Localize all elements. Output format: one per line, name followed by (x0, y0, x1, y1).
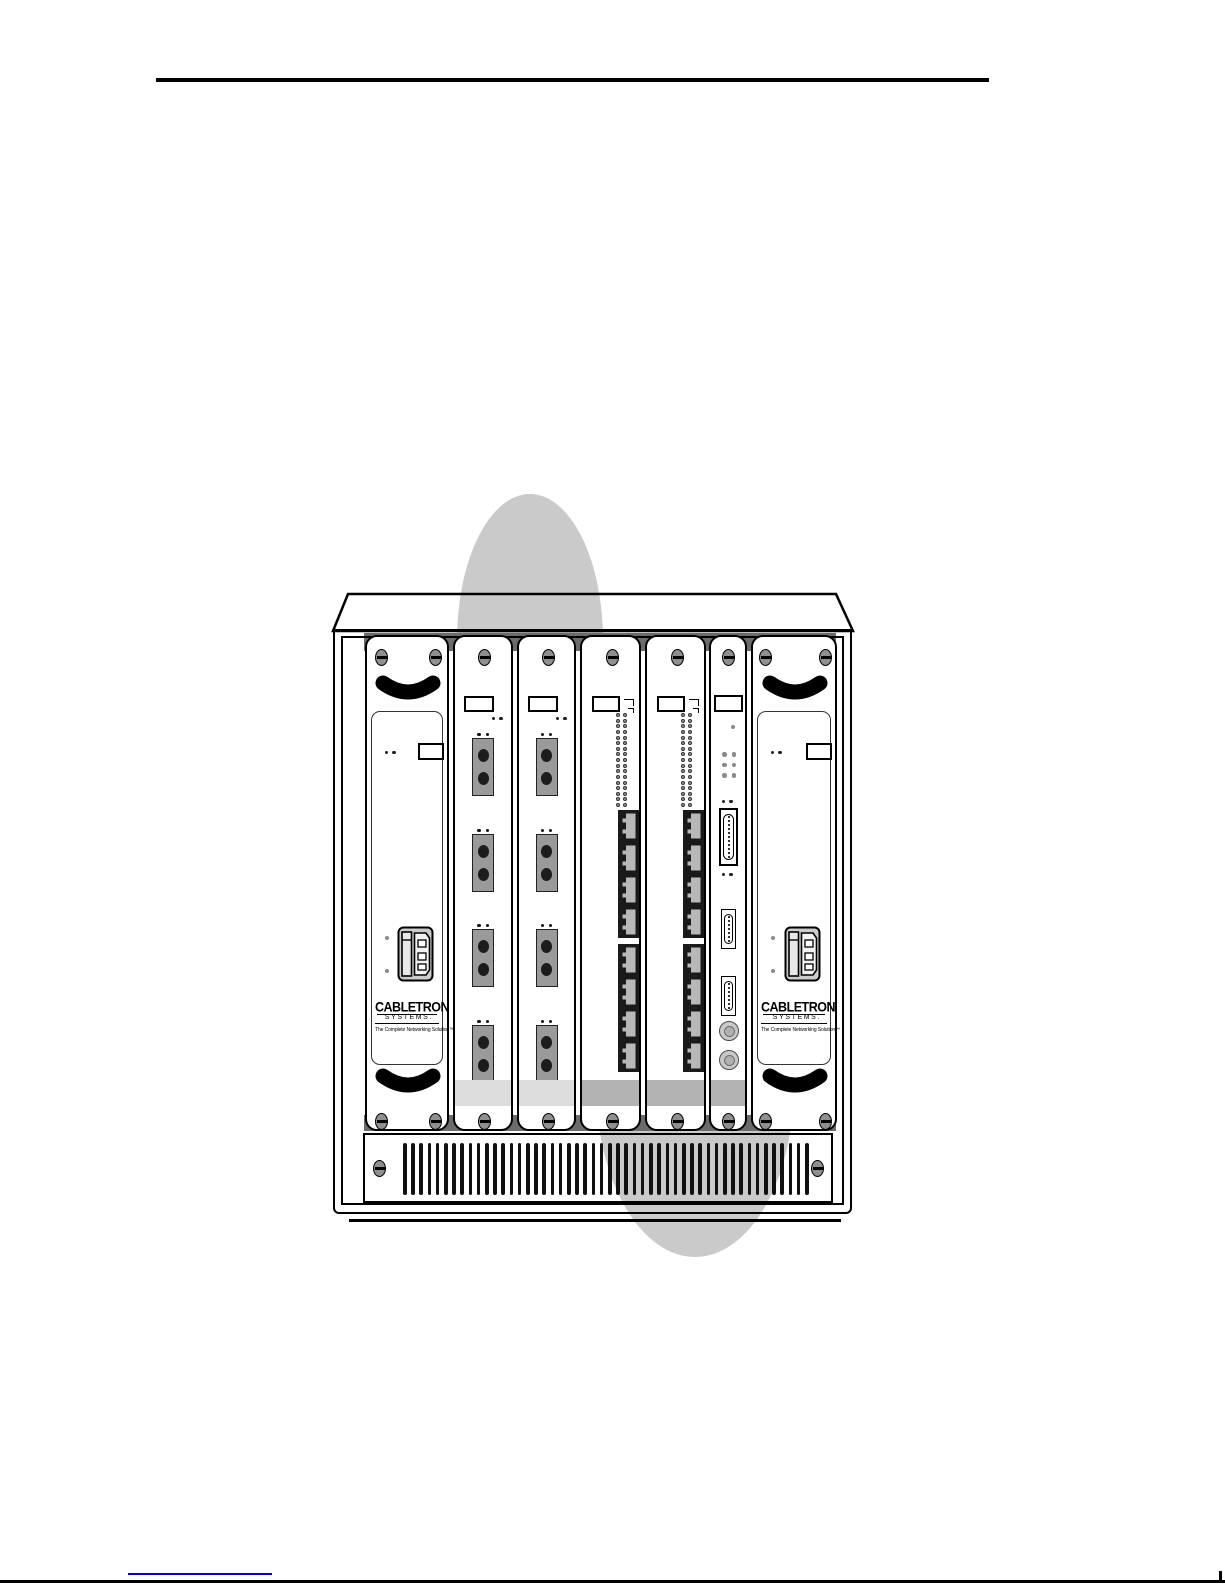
fiber-ferrule (541, 1036, 552, 1049)
round-connector (719, 1050, 739, 1070)
power-led (385, 969, 389, 973)
status-led-pair (556, 717, 567, 720)
led (549, 733, 552, 736)
cabletron-logo: CABLETRON SYSTEMS. The Complete Networki… (761, 1000, 827, 1033)
link-underline[interactable] (128, 1573, 272, 1575)
status-led-pair (722, 800, 733, 803)
vent-slot (633, 1143, 637, 1195)
led (681, 752, 685, 756)
chassis-base-line (349, 1219, 841, 1222)
led (681, 730, 685, 734)
led-row (615, 741, 628, 745)
led (688, 797, 692, 801)
led (688, 769, 692, 773)
fiber-led-pair (541, 733, 553, 736)
vent-slot (707, 1143, 711, 1195)
led (681, 758, 685, 762)
led-row (680, 724, 693, 728)
fiber-port (536, 1025, 558, 1083)
rj45-jack (618, 1008, 639, 1040)
vent-slot (510, 1143, 514, 1195)
led (688, 786, 692, 790)
led (477, 733, 480, 736)
vent-slot (428, 1143, 432, 1195)
ac-power-inlet (397, 926, 434, 982)
label-plate (592, 696, 620, 712)
led (623, 741, 627, 745)
led-row (615, 719, 628, 723)
logo-tagline: The Complete Networking Solution™ (761, 1027, 827, 1033)
led (541, 1020, 544, 1023)
led (477, 1020, 480, 1023)
led (681, 781, 685, 785)
label-plate (714, 695, 743, 712)
psu-faceplate-panel: CABLETRON SYSTEMS. The Complete Networki… (757, 711, 831, 1065)
led (681, 724, 685, 728)
handle-icon (374, 674, 442, 710)
led-row (680, 736, 693, 740)
status-led-pair (385, 751, 396, 754)
vent-slot (600, 1143, 604, 1195)
led (688, 752, 692, 756)
screw (819, 649, 832, 666)
led (616, 719, 620, 723)
rj45-jack (683, 1008, 704, 1040)
vent-slot (764, 1143, 768, 1195)
led (623, 786, 627, 790)
fiber-ferrule (478, 940, 489, 953)
vent-slot (469, 1143, 473, 1195)
label-plate (464, 696, 494, 712)
led-row (680, 730, 693, 734)
module-fiber-a (453, 635, 513, 1131)
led (486, 1020, 489, 1023)
rj45-jack-group (683, 810, 704, 938)
led (616, 730, 620, 734)
led (681, 792, 685, 796)
ejector-band (582, 1080, 639, 1106)
led (681, 764, 685, 768)
led (623, 764, 627, 768)
screw (759, 1113, 772, 1130)
rj45-jack (683, 842, 704, 874)
label-plate (418, 743, 444, 760)
led (549, 829, 552, 832)
rj45-jack-group (618, 810, 639, 938)
led (681, 719, 685, 723)
led (616, 803, 620, 807)
fiber-ferrule (478, 963, 489, 976)
vent-slot (674, 1143, 678, 1195)
fiber-port-unit (472, 733, 494, 796)
led-row (680, 764, 693, 768)
fiber-port-unit (536, 733, 558, 796)
rj45-jack (618, 976, 639, 1008)
vent-slot (436, 1143, 440, 1195)
screw (671, 1113, 684, 1130)
handle-icon (761, 1067, 829, 1103)
led-row (615, 781, 628, 785)
led-row (680, 741, 693, 745)
screw (373, 1160, 386, 1177)
led (623, 797, 627, 801)
fiber-ferrule (478, 845, 489, 858)
status-led-pair (722, 873, 733, 876)
module-power-supply-right: CABLETRON SYSTEMS. The Complete Networki… (751, 635, 837, 1131)
rj45-jack (618, 944, 639, 976)
led (616, 758, 620, 762)
module-tp-b (645, 635, 706, 1131)
led (541, 924, 544, 927)
label-bracket (689, 699, 699, 713)
chassis-top-face (330, 590, 856, 634)
ejector-band (455, 1080, 511, 1106)
fiber-ferrule (478, 1059, 489, 1072)
led (722, 752, 727, 757)
led-row (615, 775, 628, 779)
vent-slot (460, 1143, 464, 1195)
led (616, 775, 620, 779)
vent-slot (624, 1143, 628, 1195)
led-row (680, 781, 693, 785)
screw (478, 1113, 491, 1130)
vent-slot (518, 1143, 522, 1195)
fiber-port-unit (536, 829, 558, 892)
fiber-ferrule (541, 772, 552, 785)
fiber-ferrule (478, 868, 489, 881)
led (549, 1020, 552, 1023)
led (688, 764, 692, 768)
led (623, 747, 627, 751)
handle-icon (761, 674, 829, 710)
led (623, 775, 627, 779)
cabletron-logo: CABLETRON SYSTEMS. The Complete Networki… (375, 1000, 439, 1033)
led (681, 736, 685, 740)
led-row (615, 803, 628, 807)
led-row (680, 792, 693, 796)
fiber-led-pair (477, 733, 489, 736)
led (616, 752, 620, 756)
rj45-jack (683, 976, 704, 1008)
rj45-jack-group (618, 944, 639, 1072)
led (681, 803, 685, 807)
vent-slot (666, 1143, 670, 1195)
led (722, 773, 727, 778)
led (623, 719, 627, 723)
rj45-jack (618, 1040, 639, 1072)
led (623, 792, 627, 796)
led-row (615, 758, 628, 762)
led (616, 764, 620, 768)
fiber-port (472, 1025, 494, 1083)
screw (811, 1160, 824, 1177)
module-tp-a (580, 635, 641, 1131)
fiber-port-unit (472, 1020, 494, 1083)
led-row (680, 769, 693, 773)
vent-slot (559, 1143, 563, 1195)
vent-slot (649, 1143, 653, 1195)
port-led-strip (680, 713, 693, 807)
page-bottom-tick (1219, 1571, 1222, 1581)
screw (722, 649, 735, 666)
led (688, 775, 692, 779)
led-row (680, 719, 693, 723)
led (688, 724, 692, 728)
page-top-rule (156, 78, 989, 82)
led (616, 769, 620, 773)
logo-tagline: The Complete Networking Solution™ (375, 1027, 439, 1033)
led (616, 713, 620, 717)
led (688, 758, 692, 762)
ejector-band (647, 1080, 704, 1106)
led (623, 713, 627, 717)
vent-slot (444, 1143, 448, 1195)
vent-slot (789, 1143, 793, 1195)
fiber-ferrule (541, 940, 552, 953)
fiber-ferrule (541, 845, 552, 858)
vent-slot (715, 1143, 719, 1195)
fiber-led-pair (477, 924, 489, 927)
power-led (771, 936, 775, 940)
screw (375, 649, 388, 666)
screw (819, 1113, 832, 1130)
led-row (680, 797, 693, 801)
led-row (615, 713, 628, 717)
fiber-port-unit (536, 924, 558, 987)
led (623, 736, 627, 740)
led (732, 773, 737, 778)
led (688, 730, 692, 734)
vent-slot (797, 1143, 801, 1195)
logo-rule (375, 1023, 439, 1024)
vent-slot (756, 1143, 760, 1195)
vent-slot (583, 1143, 587, 1195)
vent-slot (551, 1143, 555, 1195)
vent-slot (682, 1143, 686, 1195)
vent-slot (805, 1143, 809, 1195)
led (688, 736, 692, 740)
label-plate (806, 743, 832, 760)
led (688, 719, 692, 723)
led (732, 763, 737, 768)
vent-slot (731, 1143, 735, 1195)
vent-slot (411, 1143, 415, 1195)
label-plate (528, 696, 558, 712)
rj45-jack (618, 842, 639, 874)
vent-slot-row (403, 1143, 809, 1195)
led (722, 763, 727, 768)
port-led-strip (615, 713, 628, 807)
fiber-port (536, 738, 558, 796)
vent-slot (698, 1143, 702, 1195)
vent-slot (641, 1143, 645, 1195)
logo-subtitle: SYSTEMS. (761, 1014, 827, 1021)
vent-slot (485, 1143, 489, 1195)
vent-plate (363, 1133, 833, 1203)
fiber-led-pair (541, 924, 553, 927)
vent-slot (739, 1143, 743, 1195)
led (623, 769, 627, 773)
led (681, 713, 685, 717)
logo-name: CABLETRON (761, 999, 827, 1015)
vent-slot (534, 1143, 538, 1195)
led (688, 747, 692, 751)
fiber-port-column (455, 733, 511, 1083)
led (477, 829, 480, 832)
led (681, 769, 685, 773)
rj45-jack-group (683, 944, 704, 1072)
logo-rule (761, 1023, 827, 1024)
screw (606, 649, 619, 666)
led (732, 752, 737, 757)
screw (478, 649, 491, 666)
rj45-jack (618, 906, 639, 938)
led (616, 747, 620, 751)
led (616, 792, 620, 796)
led (688, 741, 692, 745)
led (688, 713, 692, 717)
led (623, 730, 627, 734)
fiber-port-column (519, 733, 574, 1083)
led (688, 792, 692, 796)
led-row (680, 786, 693, 790)
manual-page: CABLETRON SYSTEMS. The Complete Networki… (0, 0, 1225, 1585)
fiber-ferrule (478, 749, 489, 762)
led (681, 741, 685, 745)
screw (542, 649, 555, 666)
led (623, 724, 627, 728)
ejector-band (519, 1080, 574, 1106)
led (541, 733, 544, 736)
led (486, 733, 489, 736)
psu-faceplate-panel: CABLETRON SYSTEMS. The Complete Networki… (371, 711, 443, 1065)
module-management (709, 635, 747, 1131)
screw (606, 1113, 619, 1130)
fiber-ferrule (541, 868, 552, 881)
led-row (680, 758, 693, 762)
db9-connector (721, 909, 736, 949)
led (616, 724, 620, 728)
fiber-port-unit (536, 1020, 558, 1083)
vent-slot (567, 1143, 571, 1195)
led-row (615, 747, 628, 751)
rj45-jack (618, 874, 639, 906)
fiber-port-unit (472, 924, 494, 987)
fiber-ferrule (541, 1059, 552, 1072)
fiber-port (472, 834, 494, 892)
vent-slot (542, 1143, 546, 1195)
vent-slot (723, 1143, 727, 1195)
fiber-ferrule (541, 963, 552, 976)
status-led (731, 725, 735, 729)
screw (671, 649, 684, 666)
ac-power-inlet (784, 926, 821, 982)
led (623, 781, 627, 785)
vent-slot (419, 1143, 423, 1195)
led (549, 924, 552, 927)
led-row (680, 747, 693, 751)
fiber-ferrule (478, 772, 489, 785)
led (541, 829, 544, 832)
led-row (615, 792, 628, 796)
fiber-port (536, 929, 558, 987)
led (688, 781, 692, 785)
led-row (680, 775, 693, 779)
led-row (615, 752, 628, 756)
round-connector (719, 1021, 739, 1041)
led (616, 797, 620, 801)
module-power-supply-left: CABLETRON SYSTEMS. The Complete Networki… (365, 635, 449, 1131)
vent-slot (690, 1143, 694, 1195)
vent-slot (608, 1143, 612, 1195)
ejector-band (711, 1080, 745, 1106)
led-row (615, 797, 628, 801)
led-row (615, 724, 628, 728)
fiber-led-pair (541, 1020, 553, 1023)
vent-slot (575, 1143, 579, 1195)
vent-slot (748, 1143, 752, 1195)
led (681, 747, 685, 751)
fiber-ferrule (541, 749, 552, 762)
led (681, 797, 685, 801)
status-led-grid (722, 752, 736, 778)
fiber-port-unit (472, 829, 494, 892)
led (616, 741, 620, 745)
led (616, 736, 620, 740)
page-bottom-rule (0, 1580, 1225, 1583)
rj45-jack (683, 1040, 704, 1072)
logo-name: CABLETRON (375, 999, 439, 1015)
led (486, 924, 489, 927)
rj45-jack (618, 810, 639, 842)
fiber-port (536, 834, 558, 892)
power-led (771, 969, 775, 973)
rj45-jack (683, 944, 704, 976)
led-row (615, 764, 628, 768)
screw (429, 649, 442, 666)
led-row (615, 769, 628, 773)
rj45-jack (683, 810, 704, 842)
led (477, 924, 480, 927)
fiber-led-pair (477, 1020, 489, 1023)
db25-connector (719, 808, 738, 866)
vent-slot (501, 1143, 505, 1195)
fiber-ferrule (478, 1036, 489, 1049)
led-row (680, 752, 693, 756)
led-row (680, 803, 693, 807)
vent-slot (403, 1143, 407, 1195)
led (688, 803, 692, 807)
rj45-jack (683, 874, 704, 906)
screw (542, 1113, 555, 1130)
label-bracket (624, 699, 634, 713)
vent-slot (477, 1143, 481, 1195)
led (623, 758, 627, 762)
vent-slot (452, 1143, 456, 1195)
led (616, 781, 620, 785)
screw (722, 1113, 735, 1130)
led (681, 775, 685, 779)
fiber-led-pair (477, 829, 489, 832)
power-led (385, 936, 389, 940)
screw (429, 1113, 442, 1130)
logo-subtitle: SYSTEMS. (375, 1014, 439, 1021)
led (623, 803, 627, 807)
led (681, 786, 685, 790)
status-led-pair (492, 717, 503, 720)
vent-slot (493, 1143, 497, 1195)
led (616, 786, 620, 790)
